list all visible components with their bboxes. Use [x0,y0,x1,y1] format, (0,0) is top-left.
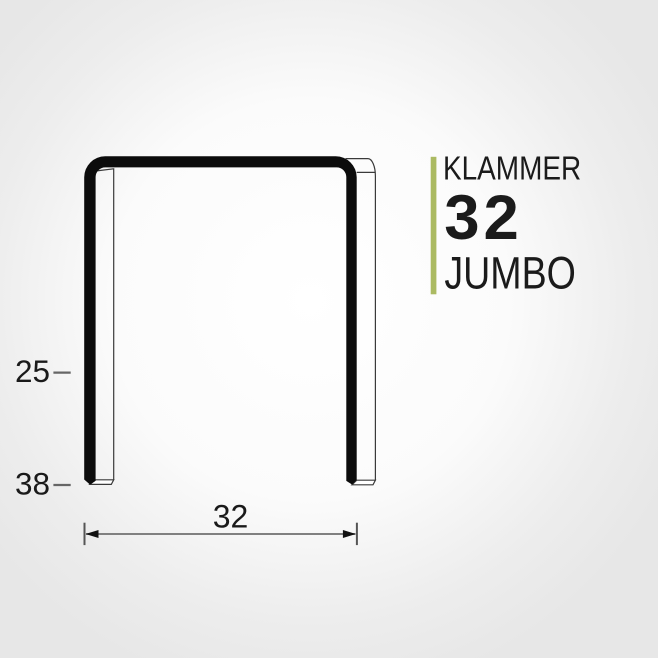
svg-text:25: 25 [15,353,50,389]
svg-text:KLAMMER: KLAMMER [443,149,581,187]
svg-text:32: 32 [444,183,523,253]
svg-text:JUMBO: JUMBO [444,247,575,298]
svg-text:38: 38 [15,465,50,501]
svg-text:32: 32 [213,499,249,535]
